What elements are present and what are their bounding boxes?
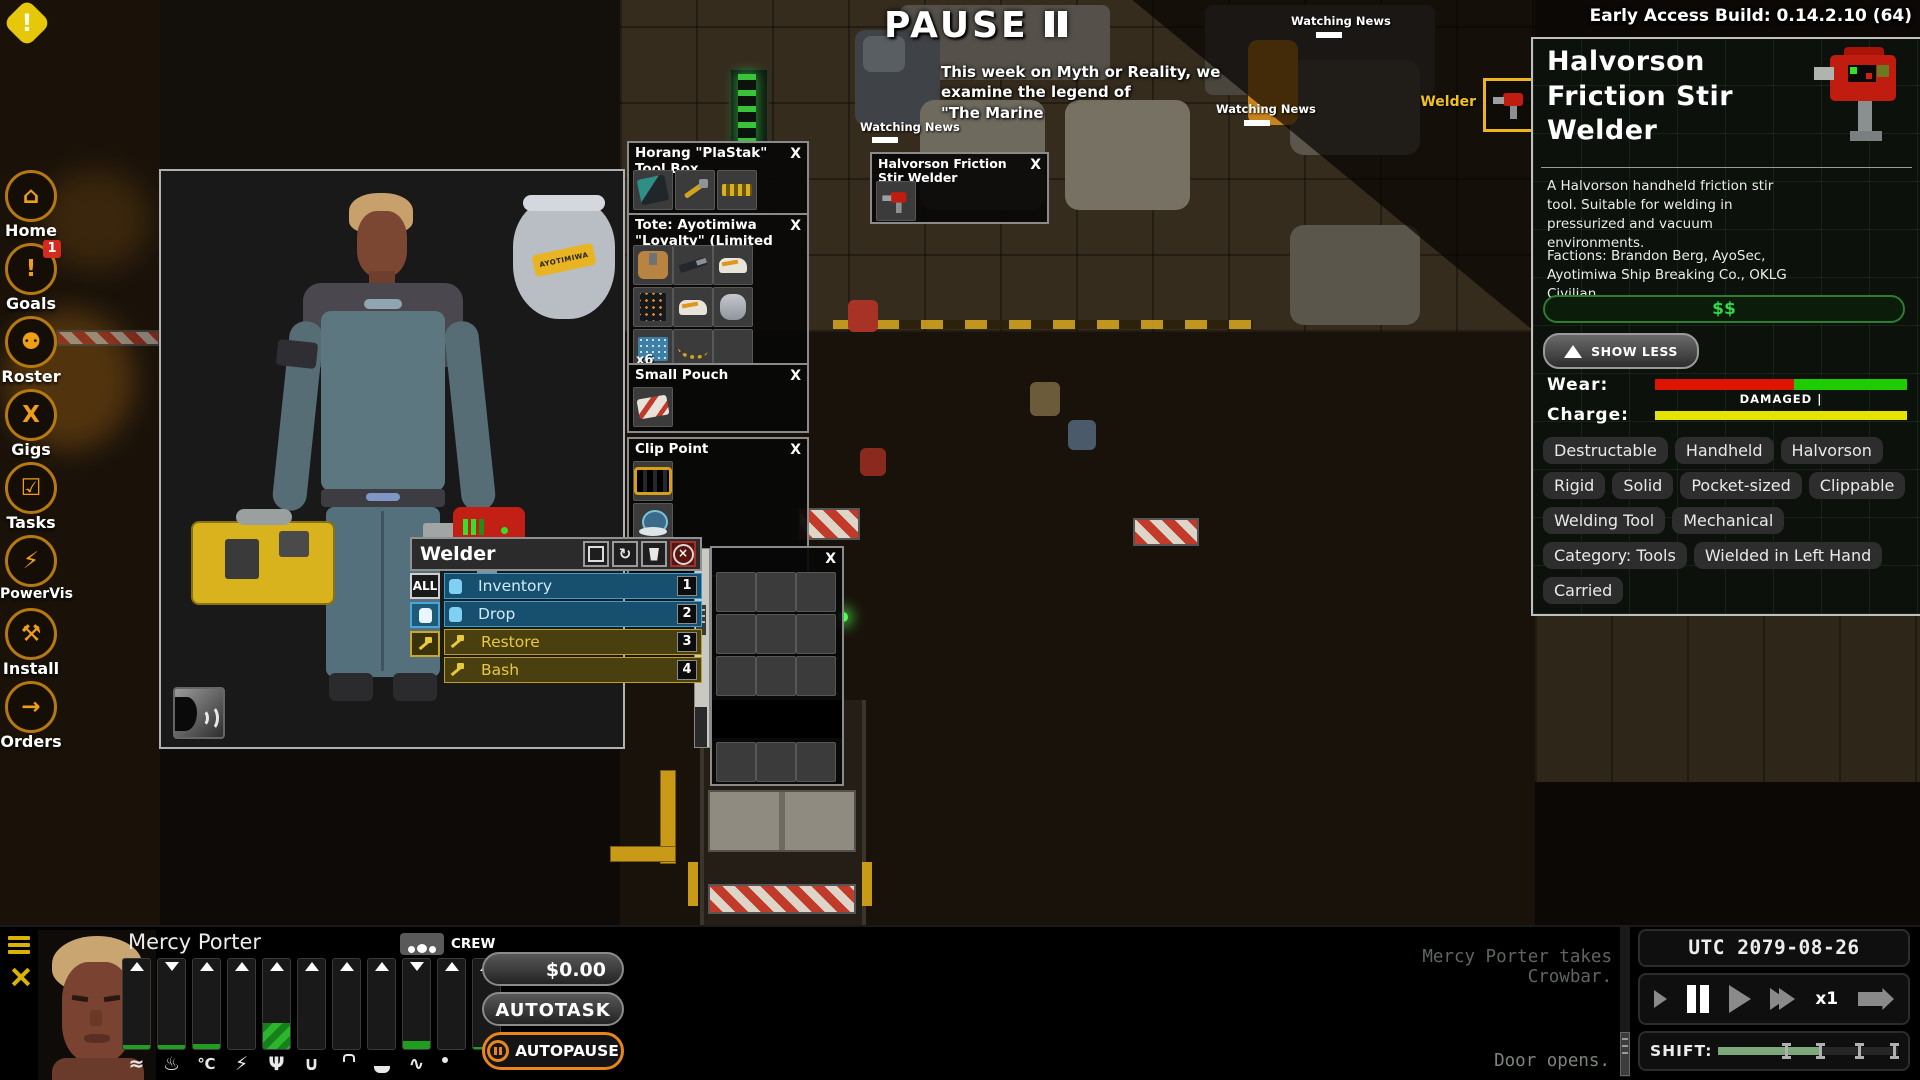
portrait-nose: [90, 1010, 102, 1026]
fast-forward-button[interactable]: [1770, 988, 1795, 1010]
hazard-door-lower[interactable]: [708, 884, 856, 914]
leg-seam: [381, 511, 384, 671]
toolbox-held[interactable]: [191, 521, 335, 605]
charge-label: Charge:: [1547, 405, 1629, 425]
shift-fill: [1718, 1047, 1819, 1055]
welder-item-icon: [1492, 86, 1528, 122]
bandage-icon: [636, 395, 669, 420]
tag-chip: Carried: [1543, 577, 1623, 604]
powervis-icon: ⚡: [5, 535, 57, 587]
watching-news-label: Watching News: [1216, 102, 1316, 116]
tag-chip: Handheld: [1675, 437, 1774, 464]
watching-news-underline: [1244, 120, 1270, 126]
empty-slot[interactable]: [756, 656, 796, 696]
tag-chip: Pocket-sized: [1680, 472, 1801, 499]
food-icon: [268, 1050, 284, 1078]
crew-people-icon: [400, 933, 444, 955]
bag-rim: [523, 195, 605, 211]
shift-slider-box: SHIFT:: [1638, 1031, 1910, 1071]
close-icon[interactable]: X: [784, 146, 801, 177]
scanner-icon: [638, 291, 668, 323]
pipe-horizontal: [610, 846, 676, 862]
slot-knife[interactable]: [673, 245, 713, 285]
respirator-icon: [639, 510, 667, 536]
toilet-icon: [372, 1050, 392, 1078]
toolbox-detail: [279, 531, 309, 557]
orders-icon: →: [5, 681, 57, 733]
wear-bar: [1655, 379, 1907, 390]
bed-icon: [442, 1050, 462, 1078]
crew-badge: CREW: [400, 933, 495, 955]
stat-temperature: [192, 958, 221, 1078]
item-artwork-welder: [1814, 47, 1912, 147]
log-faded-message: Door opens.: [1340, 1051, 1610, 1071]
empty-slot[interactable]: [756, 572, 796, 612]
stat-toilet: [367, 958, 396, 1078]
crossed-tools-icon: [8, 967, 34, 987]
close-icon[interactable]: X: [784, 368, 801, 384]
tag-chip: Wielded in Left Hand: [1694, 542, 1882, 569]
sidebar-item-tasks[interactable]: ☑ Tasks: [0, 462, 62, 535]
hand-icon: [449, 579, 462, 594]
step-button[interactable]: [1654, 990, 1667, 1008]
slot-plastic-bag[interactable]: [713, 287, 753, 327]
slot-chain[interactable]: [673, 329, 713, 365]
plastic-bag-icon: [720, 294, 746, 320]
hazard-strip-left: [56, 330, 160, 346]
menu-item-inventory[interactable]: Inventory 1: [444, 573, 702, 599]
playback-controls: x1: [1638, 973, 1910, 1025]
crew-name: Mercy Porter: [128, 930, 261, 954]
context-menu-filters: ALL: [410, 573, 444, 685]
shift-slider[interactable]: [1718, 1047, 1898, 1055]
hazard-door-right: [1133, 518, 1199, 546]
close-icon[interactable]: X: [1024, 157, 1041, 186]
menu-item-bash[interactable]: Bash 4: [444, 657, 702, 683]
weight-icon: [337, 1050, 357, 1078]
battery-icon: [634, 467, 672, 495]
expand-icon: [588, 546, 604, 562]
shift-tick[interactable]: [1893, 1043, 1896, 1059]
npc-red-sprite-2: [860, 448, 886, 476]
close-icon: ×: [673, 544, 694, 565]
slot-battery[interactable]: [633, 461, 673, 501]
shift-tick[interactable]: [1858, 1043, 1861, 1059]
sidebar-item-home[interactable]: ⌂ Home: [0, 170, 62, 243]
sidebar-item-gigs[interactable]: X Gigs: [0, 389, 62, 462]
pause-indicator: PAUSE: [884, 5, 1067, 46]
slot-bandage[interactable]: [633, 387, 673, 427]
tag-chip: Destructable: [1543, 437, 1668, 464]
menu-item-drop[interactable]: Drop 2: [444, 601, 702, 627]
context-menu-header: Welder ↻ ×: [410, 537, 702, 571]
stat-weight: [332, 958, 361, 1078]
hotkey-badge: 1: [677, 576, 697, 596]
stat-health: [402, 958, 431, 1078]
crimper-tool-icon: [637, 174, 670, 205]
sidebar-item-install[interactable]: ⚒ Install: [0, 608, 62, 681]
close-icon[interactable]: X: [784, 442, 801, 458]
empty-slot[interactable]: [716, 572, 756, 612]
empty-slot[interactable]: [796, 572, 836, 612]
autotask-button[interactable]: AUTOTASK: [482, 992, 624, 1026]
goals-notification-badge: 1: [43, 240, 61, 258]
health-icon: [409, 1050, 425, 1078]
welder-item-icon: [882, 186, 911, 215]
sidebar-item-goals[interactable]: ! 1 Goals: [0, 243, 62, 316]
warning-icon[interactable]: !: [3, 0, 51, 47]
gigs-icon: X: [5, 389, 57, 441]
log-faded-message: Mercy Porter takes Crowbar.: [1344, 947, 1612, 987]
sneaker-icon: [679, 300, 707, 315]
stat-water: [297, 958, 326, 1078]
tag-chip: Solid: [1612, 472, 1673, 499]
slot-scanner[interactable]: [633, 287, 673, 327]
roster-icon: ⚉: [5, 316, 57, 368]
npc-sprite-2: [1068, 420, 1096, 450]
home-icon: ⌂: [5, 170, 57, 222]
empty-slot[interactable]: [716, 742, 756, 782]
close-menu-button[interactable]: ×: [670, 541, 696, 567]
welder-context-menu: Welder ↻ × ALL Inventory 1 Drop: [410, 537, 702, 685]
hammer-icon: [449, 662, 465, 678]
belt-buckle: [366, 493, 400, 501]
build-version-label: Early Access Build: 0.14.2.10 (64): [1590, 6, 1912, 26]
slot-circuit-stack[interactable]: x6: [633, 329, 673, 365]
menu-icon[interactable]: [8, 933, 30, 957]
suit-arm-left: [443, 320, 497, 513]
bottom-bar: Mercy Porter CREW $0.00 AUTOTASK AUTOPAU…: [0, 925, 1920, 1080]
character-face: [357, 211, 407, 277]
speed-label: x1: [1815, 989, 1838, 1009]
shift-tick[interactable]: [1785, 1043, 1788, 1059]
jacket-icon: [638, 251, 668, 279]
sneaker-icon: [719, 258, 747, 273]
pause-label: PAUSE: [884, 5, 1029, 46]
stat-heat: [157, 958, 186, 1078]
world-container-window: Halvorson Friction Stir Welder X: [870, 152, 1049, 224]
watching-news-label: Watching News: [1291, 14, 1391, 28]
item-title: Halvorson Friction Stir Welder: [1547, 45, 1822, 149]
utc-clock: UTC 2079-08-26 14:00:41: [1638, 929, 1910, 967]
slot-tool-wrench[interactable]: [675, 170, 715, 210]
pause-icon: [1041, 11, 1067, 41]
wear-status-label: DAMAGED |: [1655, 392, 1907, 406]
hammer-icon: [449, 634, 465, 650]
empty-slot[interactable]: [716, 614, 756, 654]
money-button[interactable]: $0.00: [482, 952, 624, 986]
watching-news-underline: [872, 137, 898, 143]
empty-slot[interactable]: [716, 656, 756, 696]
seat: [1290, 225, 1420, 325]
left-sidebar: ⌂ Home ! 1 Goals ⚉ Roster X Gigs ☑ Tasks…: [0, 170, 62, 754]
toolbox-handle: [236, 509, 292, 525]
tag-chip: Rigid: [1543, 472, 1605, 499]
npc-red-sprite: [848, 300, 878, 332]
close-icon[interactable]: X: [784, 218, 801, 246]
menu-item-restore[interactable]: Restore 3: [444, 629, 702, 655]
speech-icon[interactable]: [173, 687, 225, 739]
divider: [1541, 167, 1912, 168]
tag-chip: Category: Tools: [1543, 542, 1687, 569]
drill-bit-icon: [722, 184, 752, 196]
welder-led: [501, 527, 508, 534]
log-scrollbar-handle[interactable]: [1620, 1032, 1630, 1076]
slots-spacer: [712, 700, 842, 738]
empty-slot[interactable]: [756, 742, 796, 782]
stat-food: [262, 958, 291, 1078]
suit-chest: [321, 311, 445, 491]
knife-icon: [678, 257, 707, 273]
door-marker: [862, 862, 872, 906]
play-button[interactable]: [1729, 985, 1751, 1013]
boot: [329, 673, 373, 701]
welder-pickup-highlight[interactable]: [1483, 78, 1537, 132]
crew-stats: [122, 958, 501, 1078]
hotkey-badge: 4: [677, 660, 697, 680]
scrollbar-block: [695, 707, 707, 747]
hotkey-badge: 2: [677, 604, 697, 624]
slot-tool-drill[interactable]: [717, 170, 757, 210]
wrench-tool-icon: [681, 177, 709, 203]
autopause-button[interactable]: AUTOPAUSE: [482, 1032, 624, 1070]
clip-point-title: Clip Point: [635, 442, 708, 458]
empty-slot[interactable]: [796, 614, 836, 654]
stat-energy: [227, 958, 256, 1078]
slot-jacket[interactable]: [633, 245, 673, 285]
thermometer-icon: [197, 1050, 215, 1078]
watching-news-underline: [1316, 32, 1342, 38]
portrait-mouth: [84, 1034, 110, 1043]
toolbox-window: Horang "PlaStak" Tool Box X: [627, 141, 809, 215]
close-icon[interactable]: X: [819, 551, 836, 569]
tote-window-title: Tote: Ayotimiwa "Loyalty" (Limited: [635, 218, 775, 246]
slot-shoe-2[interactable]: [673, 287, 713, 327]
crew-badge-label: CREW: [451, 936, 495, 952]
sidebar-item-powervis[interactable]: ⚡ PowerVis: [0, 535, 62, 608]
welder-pickup-label: Welder: [1396, 94, 1476, 110]
slot-shoe-1[interactable]: [713, 245, 753, 285]
tag-chip: Mechanical: [1672, 507, 1784, 534]
item-details-panel: Halvorson Friction Stir Welder A Halvors…: [1531, 37, 1920, 616]
show-less-button[interactable]: SHOW LESS: [1543, 333, 1699, 369]
filter-hand-button[interactable]: [410, 602, 440, 628]
small-pouch-title: Small Pouch: [635, 368, 728, 384]
wear-label: Wear:: [1547, 375, 1608, 395]
max-speed-button[interactable]: [1858, 988, 1894, 1010]
container-slot-welder[interactable]: [876, 181, 916, 221]
stat-sleep: [437, 958, 466, 1078]
suit-collar-light: [364, 299, 402, 309]
stat-air: [122, 958, 151, 1078]
refresh-button[interactable]: ↻: [612, 541, 638, 567]
empty-slot[interactable]: [756, 614, 796, 654]
wear-bar-green: [1794, 379, 1907, 390]
air-icon: [129, 1050, 145, 1078]
water-icon: [304, 1050, 319, 1078]
tag-chip: Clippable: [1809, 472, 1906, 499]
filter-all-button[interactable]: ALL: [410, 573, 440, 599]
triangle-up-icon: [1564, 345, 1582, 358]
expand-button[interactable]: [583, 541, 609, 567]
item-tags: Destructable Handheld Halvorson Rigid So…: [1543, 437, 1915, 604]
context-menu-title: Welder: [420, 543, 580, 565]
news-ticker-line1: This week on Myth or Reality, we examine…: [941, 62, 1286, 103]
hotkey-badge: 3: [677, 632, 697, 652]
empty-slot[interactable]: [796, 656, 836, 696]
world-right-floor: [1535, 612, 1920, 782]
sidebar-item-orders[interactable]: → Orders: [0, 681, 62, 754]
pause-circle-icon: [487, 1040, 509, 1062]
small-pouch-window: Small Pouch X: [627, 363, 809, 433]
refresh-icon: ↻: [619, 545, 632, 563]
install-icon: ⚒: [5, 608, 57, 660]
armband: [276, 339, 318, 369]
log-scrollbar[interactable]: [1620, 927, 1630, 1077]
sidebar-item-roster[interactable]: ⚉ Roster: [0, 316, 62, 389]
npc-sprite: [1030, 382, 1060, 416]
item-description: A Halvorson handheld friction stir tool.…: [1547, 177, 1792, 253]
game-screen: Welder ! PAUSE Early Access Build: 0.14.…: [0, 0, 1920, 1080]
wear-bar-red: [1655, 379, 1794, 390]
price-button[interactable]: $$: [1543, 295, 1905, 323]
slot-empty[interactable]: [713, 329, 753, 365]
watching-news-label: Watching News: [860, 120, 960, 134]
hand-icon: [449, 607, 462, 622]
pin-button[interactable]: [641, 541, 667, 567]
cup-icon: [649, 548, 659, 561]
tasks-icon: ☑: [5, 462, 57, 514]
tag-chip: Halvorson: [1781, 437, 1883, 464]
hand-icon: [419, 608, 432, 623]
slot-tool-crimper[interactable]: [633, 170, 673, 210]
shift-tick[interactable]: [1819, 1043, 1822, 1059]
empty-slot[interactable]: [796, 742, 836, 782]
gold-chain-icon: [677, 337, 709, 361]
door-marker: [688, 862, 698, 906]
shift-label: SHIFT:: [1650, 1042, 1712, 1060]
hammer-icon: [417, 636, 433, 652]
filter-tool-button[interactable]: [410, 631, 440, 657]
tote-window: Tote: Ayotimiwa "Loyalty" (Limited X x6: [627, 213, 809, 365]
flame-icon: [163, 1050, 180, 1078]
tag-chip: Welding Tool: [1543, 507, 1665, 534]
welder-charge-lights: [463, 519, 468, 535]
conduit-pipe: [833, 320, 1253, 329]
charge-bar: [1655, 411, 1907, 420]
pause-button[interactable]: [1687, 985, 1709, 1013]
lightning-icon: [235, 1050, 248, 1078]
toolbox-detail: [225, 539, 259, 579]
door-lower[interactable]: [708, 790, 856, 852]
pockets-window: X: [710, 546, 844, 786]
